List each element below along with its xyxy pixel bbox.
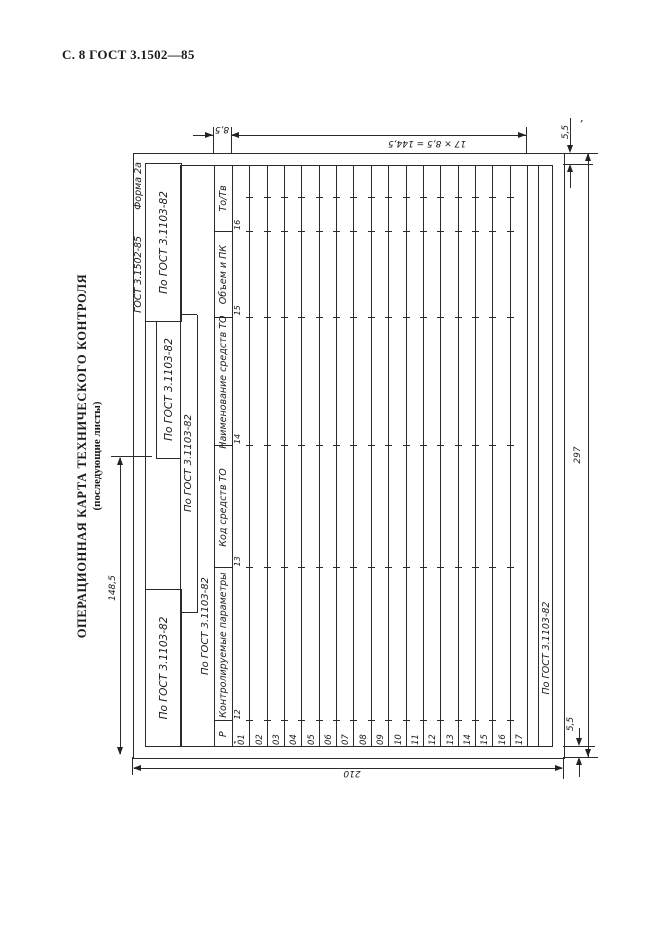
table-row-line <box>319 165 320 747</box>
column-boundary-tick <box>472 445 479 446</box>
column-boundary-tick <box>507 231 514 232</box>
column-boundary-tick <box>472 198 479 199</box>
table-row-line <box>249 165 250 747</box>
column-boundary-tick <box>281 231 288 232</box>
table-row-line <box>510 165 511 747</box>
column-boundary-tick <box>298 721 305 722</box>
column-header-to-tv: То/Тв <box>214 165 232 232</box>
table-row-line <box>284 165 285 747</box>
table-row-line <box>492 165 493 747</box>
ext-frame-bottom <box>563 746 595 747</box>
column-header-name: Наименование средств ТО <box>214 318 232 446</box>
column-boundary-tick <box>246 721 253 722</box>
dim-297-line <box>588 154 589 757</box>
row-number: 14 <box>462 725 474 745</box>
column-boundary-tick <box>437 198 444 199</box>
arrow-55tr-down <box>567 145 573 153</box>
form-sheet: ГОСТ 3.1502-85Форма 2а По ГОСТ 3.1103-82… <box>133 153 565 759</box>
column-boundary-tick <box>298 231 305 232</box>
column-boundary-tick <box>385 317 392 318</box>
arrow-1485-top <box>117 457 123 465</box>
footer-block: По ГОСТ 3.1103-82 <box>538 568 554 728</box>
column-boundary-tick <box>333 231 340 232</box>
arrow-297-bottom <box>585 749 591 757</box>
dim-margin-bottom-right: 5,5 <box>565 711 577 737</box>
row-number: 02 <box>254 725 266 745</box>
designation-form-label: Форма 2а <box>133 162 144 210</box>
column-boundary-tick <box>298 317 305 318</box>
column-boundary-tick <box>507 568 514 569</box>
column-boundary-tick <box>246 317 253 318</box>
column-boundary-tick <box>350 231 357 232</box>
arrow-210-left <box>133 765 141 771</box>
column-boundary-tick <box>507 317 514 318</box>
column-boundary-tick <box>385 445 392 446</box>
column-boundary-tick <box>472 568 479 569</box>
column-boundary-tick <box>281 198 288 199</box>
column-boundary-tick <box>333 568 340 569</box>
column-boundary-tick <box>246 231 253 232</box>
dim-55tr-shaft2 <box>570 172 571 188</box>
column-boundary-tick <box>489 231 496 232</box>
column-boundary-tick <box>298 198 305 199</box>
column-boundary-tick <box>298 445 305 446</box>
column-boundary-tick <box>316 198 323 199</box>
row-number: 11 <box>410 725 422 745</box>
column-boundary-tick <box>420 445 427 446</box>
document-title: ОПЕРАЦИОННАЯ КАРТА ТЕХНИЧЕСКОГО КОНТРОЛЯ <box>75 256 90 656</box>
column-boundary-tick <box>350 445 357 446</box>
dim-55br-shaft2 <box>579 765 580 777</box>
column-boundary-tick <box>437 721 444 722</box>
column-boundary-tick <box>437 568 444 569</box>
stray-mark: ’ <box>579 118 583 131</box>
row-number: 10 <box>393 725 405 745</box>
dim-table-rows: 17 × 8,5 = 144,5 <box>347 137 507 149</box>
column-boundary-tick <box>489 317 496 318</box>
form-designation: ГОСТ 3.1502-85Форма 2а <box>133 162 145 313</box>
column-boundary-tick <box>264 231 271 232</box>
designation-standard: ГОСТ 3.1502-85 <box>133 236 144 313</box>
row-number: 06 <box>323 725 335 745</box>
column-boundary-tick <box>455 231 462 232</box>
column-boundary-tick <box>368 721 375 722</box>
column-boundary-tick <box>385 198 392 199</box>
column-boundary-tick <box>368 568 375 569</box>
column-boundary-tick <box>420 231 427 232</box>
header-strip-1: По ГОСТ 3.1103-82 <box>180 343 197 583</box>
dim-half-length: 148,5 <box>107 571 119 605</box>
table-row-line <box>475 165 476 747</box>
row-number: 17 <box>514 725 526 745</box>
column-boundary-tick <box>368 198 375 199</box>
column-header-volume: Объем и ПК <box>214 232 232 318</box>
column-number-15: 15 <box>233 305 242 315</box>
row-number: 04 <box>288 725 300 745</box>
column-boundary-tick <box>246 568 253 569</box>
column-number-13: 13 <box>233 556 242 566</box>
document-title-block: ОПЕРАЦИОННАЯ КАРТА ТЕХНИЧЕСКОГО КОНТРОЛЯ… <box>75 256 105 656</box>
column-boundary-tick <box>264 317 271 318</box>
column-boundary-tick <box>437 445 444 446</box>
ext-210-right <box>563 757 564 779</box>
column-boundary-tick <box>368 445 375 446</box>
arrow-55tr-up <box>567 164 573 172</box>
arrow-1485-bottom <box>117 747 123 755</box>
row-number: 05 <box>306 725 318 745</box>
column-boundary-tick <box>281 568 288 569</box>
column-boundary-tick <box>437 317 444 318</box>
dim-1485-line <box>120 458 121 754</box>
column-boundary-tick <box>403 317 410 318</box>
column-boundary-tick <box>333 721 340 722</box>
column-header-params: Контролируемые параметры <box>214 569 232 722</box>
column-boundary-tick <box>264 568 271 569</box>
column-boundary-tick <box>507 445 514 446</box>
arrow-1445-left <box>231 132 239 138</box>
column-boundary-tick <box>403 198 410 199</box>
row-number: 15 <box>479 725 491 745</box>
column-boundary-tick <box>455 317 462 318</box>
page-header: С. 8 ГОСТ 3.1502—85 <box>62 47 195 63</box>
column-boundary-tick <box>350 198 357 199</box>
column-boundary-tick <box>316 231 323 232</box>
column-boundary-tick <box>264 445 271 446</box>
arrow-1445-right <box>518 132 526 138</box>
row-number: 09 <box>375 725 387 745</box>
dim-sheet-length: 297 <box>572 440 584 470</box>
column-number-14: 14 <box>233 434 242 444</box>
row-number: 12 <box>427 725 439 745</box>
column-boundary-tick <box>455 198 462 199</box>
column-boundary-tick <box>472 317 479 318</box>
table-row-line <box>440 165 441 747</box>
column-boundary-tick <box>455 721 462 722</box>
column-number-12: 12 <box>233 709 242 719</box>
column-boundary-tick <box>489 568 496 569</box>
table-row-line <box>527 165 528 747</box>
table-row-line <box>458 165 459 747</box>
column-boundary-tick <box>246 198 253 199</box>
table-row-line <box>388 165 389 747</box>
table-row-line <box>301 165 302 747</box>
ext-sheet-top <box>563 153 598 154</box>
header-divider-b <box>180 314 197 315</box>
column-boundary-tick <box>264 198 271 199</box>
row-number: 16 <box>497 725 509 745</box>
column-boundary-tick <box>489 198 496 199</box>
table-row-line <box>336 165 337 747</box>
column-header-code: Код средств ТО <box>214 447 232 569</box>
dim-margin-top-right: 5,5 <box>560 119 572 145</box>
column-boundary-tick <box>403 568 410 569</box>
header-block-left: По ГОСТ 3.1103-82 <box>145 589 182 747</box>
column-boundary-tick <box>507 198 514 199</box>
column-header-r: Р <box>214 722 232 748</box>
column-boundary-tick <box>368 231 375 232</box>
table-row-line <box>406 165 407 747</box>
column-boundary-tick <box>316 721 323 722</box>
column-boundary-tick <box>403 445 410 446</box>
column-boundary-tick <box>385 231 392 232</box>
arrow-210-right <box>555 765 563 771</box>
column-boundary-tick <box>403 231 410 232</box>
dim-1445-line <box>231 135 526 136</box>
arrow-297-top <box>585 153 591 161</box>
header-strip-2: По ГОСТ 3.1103-82 <box>197 546 214 706</box>
column-boundary-tick <box>350 568 357 569</box>
column-boundary-tick <box>264 721 271 722</box>
row-number: 08 <box>358 725 370 745</box>
row-number: 03 <box>271 725 283 745</box>
header-block-middle: По ГОСТ 3.1103-82 <box>156 321 181 459</box>
column-boundary-tick <box>281 721 288 722</box>
table-row-line <box>267 165 268 747</box>
header-block-right: По ГОСТ 3.1103-82 <box>145 163 182 322</box>
column-boundary-tick <box>455 445 462 446</box>
arrow-55br-up <box>576 757 582 765</box>
column-boundary-tick <box>246 445 253 446</box>
table-row-line <box>353 165 354 747</box>
column-boundary-tick <box>507 721 514 722</box>
arrow-55br-down <box>576 738 582 746</box>
column-boundary-tick <box>472 231 479 232</box>
column-boundary-tick <box>350 721 357 722</box>
column-boundary-tick <box>385 568 392 569</box>
column-boundary-tick <box>333 317 340 318</box>
column-boundary-tick <box>420 317 427 318</box>
column-boundary-tick <box>316 317 323 318</box>
column-boundary-tick <box>455 568 462 569</box>
column-boundary-tick <box>368 317 375 318</box>
column-boundary-tick <box>298 568 305 569</box>
column-boundary-tick <box>472 721 479 722</box>
table-row-line <box>371 165 372 747</box>
column-boundary-tick <box>437 231 444 232</box>
column-boundary-tick <box>489 445 496 446</box>
row-number: 01 <box>236 725 248 745</box>
document-subtitle: (последующие листы) <box>91 256 103 656</box>
column-boundary-tick <box>281 317 288 318</box>
column-boundary-tick <box>333 198 340 199</box>
column-boundary-tick <box>281 445 288 446</box>
column-boundary-tick <box>350 317 357 318</box>
column-boundary-tick <box>316 445 323 446</box>
ext-line-c <box>526 127 527 153</box>
header-line-4 <box>232 165 233 747</box>
row-number: 13 <box>445 725 457 745</box>
column-boundary-tick <box>489 721 496 722</box>
column-boundary-tick <box>420 568 427 569</box>
scanned-standard-page: { "page": { "header_text": "С. 8 ГОСТ 3.… <box>0 0 661 936</box>
table-row-line <box>423 165 424 747</box>
row-number: 07 <box>340 725 352 745</box>
column-boundary-tick <box>316 568 323 569</box>
column-boundary-tick <box>403 721 410 722</box>
column-boundary-tick <box>385 721 392 722</box>
column-boundary-tick <box>333 445 340 446</box>
header-divider-a <box>180 612 197 613</box>
column-boundary-tick <box>420 721 427 722</box>
column-number-16: 16 <box>233 220 242 230</box>
dim-sheet-width: 210 <box>332 767 372 779</box>
column-boundary-tick <box>420 198 427 199</box>
